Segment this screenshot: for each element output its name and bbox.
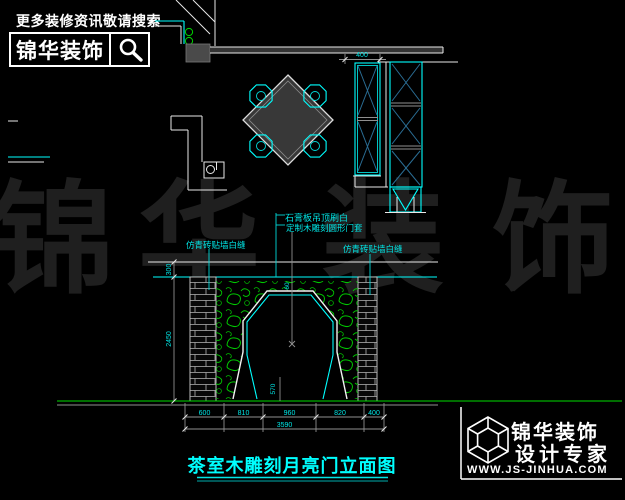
- footer-tagline: 设计专家: [515, 438, 611, 467]
- cad-screenshot: 锦 华 装 饰 更多装修资讯敬请搜索 锦华装饰: [0, 0, 625, 500]
- isometric-cube-logo-icon: [468, 417, 508, 463]
- footer-website-link[interactable]: WWW.JS-JINHUA.COM: [467, 464, 608, 476]
